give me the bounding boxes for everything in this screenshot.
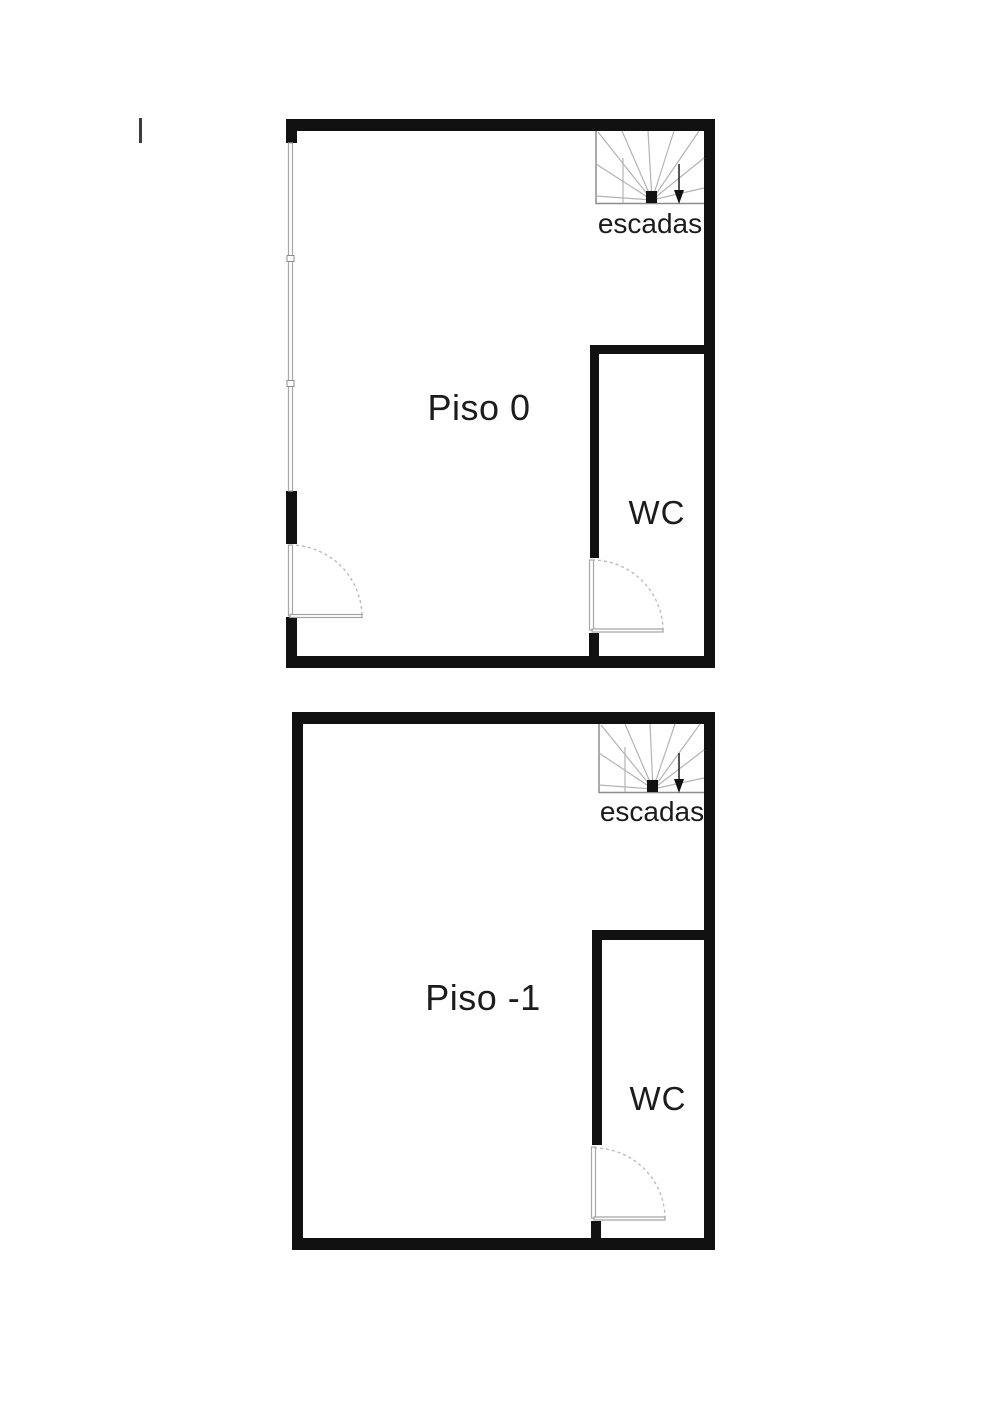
stairs-direction-arrow-piso-minus-1	[674, 753, 684, 793]
room-label-wc-piso-minus-1: WC	[608, 1082, 708, 1115]
wc-door-piso-minus-1	[592, 1147, 666, 1220]
stairs-label-piso-0: escadas	[585, 210, 715, 238]
room-label-wc-piso-0: WC	[607, 496, 707, 529]
stray-tick-mark	[139, 118, 142, 143]
wc-door-piso-0	[590, 560, 664, 632]
room-label-piso-minus-1: Piso -1	[383, 980, 583, 1016]
stairs-direction-arrow-piso-0	[674, 164, 684, 204]
entry-door-piso-0	[289, 545, 363, 618]
stairs-label-piso-minus-1: escadas	[587, 798, 717, 826]
floorplan-page: Piso 0 WC escadas Piso -1 WC escadas	[0, 0, 1000, 1418]
stairs-icon-piso-minus-1	[599, 724, 704, 793]
room-label-piso-0: Piso 0	[379, 390, 579, 426]
stairs-icon-piso-0	[596, 131, 704, 204]
window-wall-piso-0	[287, 143, 294, 491]
